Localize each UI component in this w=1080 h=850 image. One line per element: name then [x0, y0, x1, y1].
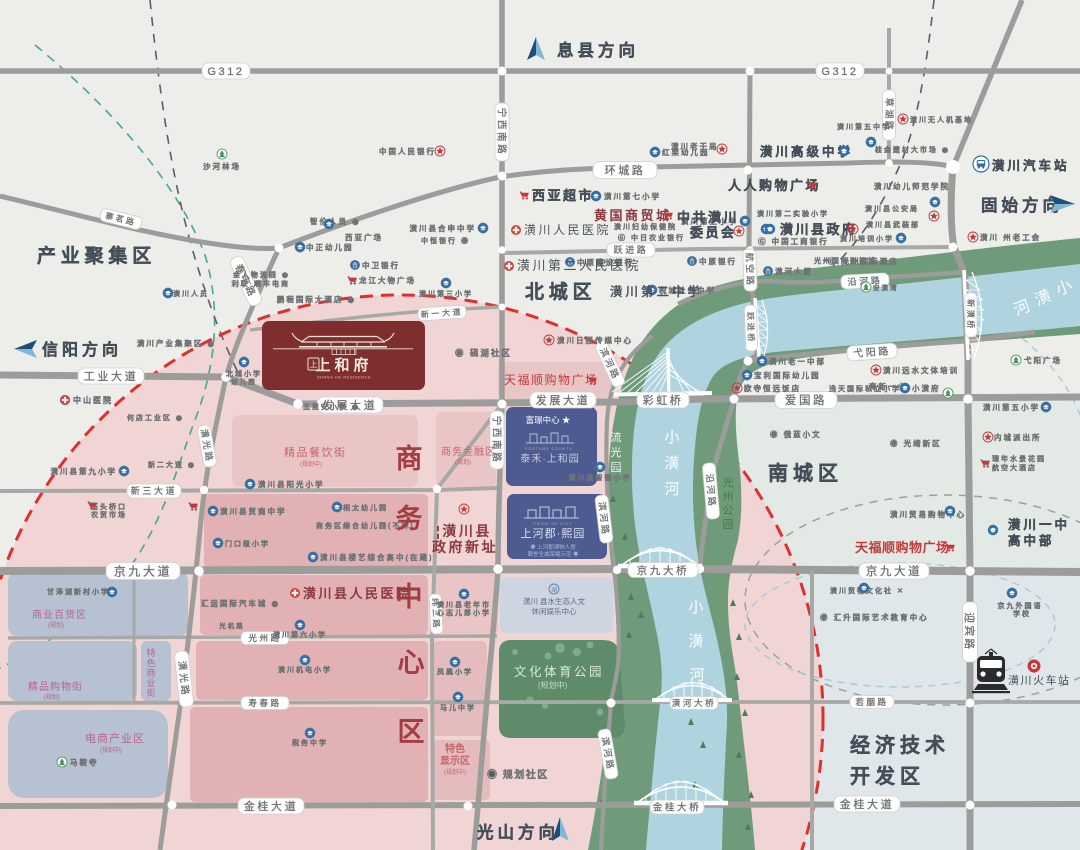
svg-text:龙江大物广场: 龙江大物广场: [359, 275, 416, 285]
svg-text:◉ 规划社区: ◉ 规划社区: [487, 768, 549, 781]
svg-text:欧寺恒远饭店: 欧寺恒远饭店: [744, 383, 801, 393]
svg-text:商业百货区: 商业百货区: [32, 608, 87, 621]
svg-text:河: 河: [689, 667, 704, 684]
svg-text:中山医院: 中山医院: [73, 395, 113, 405]
svg-text:务: 务: [396, 504, 423, 534]
svg-text:沙河林场: 沙河林场: [203, 161, 241, 171]
svg-text:光山方向: 光山方向: [476, 822, 559, 842]
svg-text:汇运国际汽车城 ◍: 汇运国际汽车城 ◍: [201, 598, 280, 608]
svg-text:(规划中): (规划中): [444, 768, 466, 776]
svg-text:G312: G312: [821, 66, 858, 78]
svg-text:宝利国际幼儿园: 宝利国际幼儿园: [754, 370, 821, 380]
svg-text:电商产业区: 电商产业区: [85, 731, 145, 745]
svg-text:潢川 县水生态人文: 潢川 县水生态人文: [523, 596, 586, 606]
svg-text:跃进桥: 跃进桥: [746, 312, 757, 344]
svg-text:息县方向: 息县方向: [557, 40, 639, 60]
svg-text:产业聚集区: 产业聚集区: [37, 244, 156, 267]
svg-text:潢川火车站: 潢川火车站: [1008, 673, 1071, 687]
svg-text:智伦人员 ◍: 智伦人员 ◍: [310, 216, 361, 226]
svg-text:潢川县阳光小学: 潢川县阳光小学: [258, 479, 325, 489]
svg-text:京九外国语: 京九外国语: [998, 601, 1043, 610]
svg-text:潢川第二中学: 潢川第二中学: [610, 284, 703, 299]
svg-text:特: 特: [146, 647, 155, 658]
svg-text:精品购物街: 精品购物街: [28, 680, 83, 693]
svg-text:潢川一中: 潢川一中: [1008, 517, 1070, 532]
svg-text:弋阳广场: 弋阳广场: [1024, 355, 1062, 365]
svg-text:南城区: 南城区: [768, 461, 843, 485]
svg-text:潢川第三小学: 潢川第三小学: [419, 289, 473, 298]
svg-text:幼儿园: 幼儿园: [231, 377, 257, 386]
svg-text:心: 心: [398, 648, 425, 678]
svg-text:州: 州: [723, 491, 734, 503]
svg-text:FORTUNE COUNTY: FORTUNE COUNTY: [525, 447, 572, 451]
svg-text:发展大道: 发展大道: [536, 393, 590, 407]
svg-text:◉ 汇升国际艺术教育中心: ◉ 汇升国际艺术教育中心: [820, 612, 929, 622]
svg-text:G312: G312: [207, 66, 244, 78]
svg-text:甘泽湖新村小学: 甘泽湖新村小学: [47, 587, 110, 596]
svg-text:理年水景花园: 理年水景花园: [992, 454, 1046, 463]
svg-text:迎宾路: 迎宾路: [963, 612, 976, 651]
svg-text:光: 光: [611, 445, 622, 459]
svg-text:精品餐饮街: 精品餐饮街: [284, 445, 347, 459]
svg-text:潢川产业集聚区 ◍: 潢川产业集聚区 ◍: [137, 338, 216, 348]
svg-text:商务金融区: 商务金融区: [441, 445, 496, 458]
svg-text:环城路: 环城路: [605, 164, 646, 177]
svg-text:寿春路: 寿春路: [248, 698, 281, 708]
svg-text:流: 流: [611, 430, 622, 444]
svg-text:Ⓖ 中国工商银行: Ⓖ 中国工商银行: [758, 236, 829, 246]
svg-text:航空路: 航空路: [744, 252, 756, 287]
svg-text:利联·顺丰电商: 利联·顺丰电商: [232, 279, 290, 288]
svg-text:马儿中学: 马儿中学: [440, 703, 476, 712]
svg-text:京九大桥: 京九大桥: [637, 564, 689, 577]
svg-text:潢川县人民医院: 潢川县人民医院: [303, 586, 412, 601]
svg-text:新三大道: 新三大道: [131, 485, 177, 496]
svg-text:金桂大桥: 金桂大桥: [653, 801, 701, 813]
svg-text:何店工业区 ◍: 何店工业区 ◍: [127, 413, 184, 422]
svg-text:中共潢川: 中共潢川: [677, 210, 739, 225]
svg-text:桂金建材大市场 ◍: 桂金建材大市场 ◍: [874, 145, 950, 154]
svg-text:税务中学: 税务中学: [292, 738, 328, 747]
svg-text:商: 商: [146, 667, 155, 678]
svg-text:西亚超市: 西亚超市: [532, 188, 594, 203]
svg-text:潢川县武装部: 潢川县武装部: [866, 220, 920, 229]
svg-text:潢川汽车站: 潢川汽车站: [992, 158, 1070, 173]
svg-text:上和府: 上和府: [315, 356, 372, 374]
svg-text:富璟中心 ★: 富璟中心 ★: [526, 415, 571, 425]
svg-text:◉ 俄蓝小文: ◉ 俄蓝小文: [770, 429, 822, 439]
svg-text:黄国商贸城: 黄国商贸城: [594, 208, 672, 223]
svg-text:(规划中): (规划中): [300, 460, 322, 468]
svg-text:载誉全城荣耀示范 ◉: 载誉全城荣耀示范 ◉: [527, 550, 579, 558]
svg-text:休闲娱乐中心: 休闲娱乐中心: [532, 606, 577, 616]
svg-text:金人物流园 ◍: 金人物流园 ◍: [232, 270, 290, 279]
svg-text:小潢府: 小潢府: [912, 383, 941, 393]
svg-text:泰禾·上和园: 泰禾·上和园: [520, 452, 579, 465]
svg-text:宁西南路: 宁西南路: [496, 108, 508, 156]
svg-text:高中部: 高中部: [1008, 533, 1055, 548]
svg-text:中恒银行 ◉: 中恒银行 ◉: [421, 236, 470, 245]
svg-text:京九大道: 京九大道: [114, 564, 172, 578]
svg-text:◉ 砚湖社区: ◉ 砚湖社区: [455, 348, 512, 358]
svg-text:经济技术: 经济技术: [850, 733, 950, 757]
svg-text:农贸市场: 农贸市场: [90, 510, 127, 519]
svg-text:学校: 学校: [1013, 609, 1031, 618]
svg-text:潢川县智德小学: 潢川县智德小学: [569, 473, 632, 482]
svg-text:街: 街: [146, 687, 155, 698]
svg-text:区: 区: [398, 717, 425, 747]
svg-text:京九大道: 京九大道: [866, 564, 922, 578]
svg-text:潢川人员: 潢川人员: [173, 289, 209, 298]
svg-text:中国人民银行: 中国人民银行: [379, 146, 436, 156]
svg-text:潢川第二人民医院: 潢川第二人民医院: [517, 258, 641, 273]
svg-text:潢川远水文体培训: 潢川远水文体培训: [883, 365, 959, 375]
svg-text:潢川第二实验小学: 潢川第二实验小学: [757, 209, 829, 218]
svg-text:(规划): (规划): [48, 621, 64, 629]
svg-text:河: 河: [664, 481, 679, 498]
svg-text:商: 商: [396, 444, 423, 474]
svg-text:(规划中): (规划中): [100, 746, 122, 754]
svg-text:相太幼儿园: 相太幼儿园: [343, 503, 388, 512]
svg-text:潢河大厦: 潢河大厦: [775, 266, 813, 276]
svg-text:(规划中): (规划中): [538, 680, 568, 690]
svg-text:天福顺购物广场: 天福顺购物广场: [855, 540, 950, 555]
svg-text:潢河大桥: 潢河大桥: [672, 698, 716, 708]
svg-text:特色: 特色: [445, 742, 465, 755]
svg-text:安潢湾: 安潢湾: [873, 283, 899, 292]
svg-text:园: 园: [611, 461, 622, 474]
svg-text:潢川人民医院: 潢川人民医院: [524, 223, 611, 237]
svg-text:若胭路: 若胭路: [855, 697, 888, 707]
svg-text:鹏程国际大酒店 ◍: 鹏程国际大酒店 ◍: [277, 294, 356, 304]
svg-text:新二大道 ◍: 新二大道 ◍: [148, 460, 196, 469]
svg-text:跃进路: 跃进路: [614, 244, 649, 255]
svg-text:园: 园: [723, 518, 734, 531]
svg-text:爱国路: 爱国路: [785, 393, 827, 407]
svg-text:光机路: 光机路: [218, 621, 245, 630]
svg-text:心志儿郎小学: 心志儿郎小学: [437, 608, 491, 617]
svg-text:潢川第七小学: 潢川第七小学: [604, 191, 661, 201]
svg-text:新潢桥: 新潢桥: [966, 299, 976, 331]
svg-text:潢川第五小学: 潢川第五小学: [983, 402, 1040, 412]
svg-text:潢川县楼艺综合高中(在建): 潢川县楼艺综合高中(在建): [320, 552, 434, 562]
svg-text:潢川县合申中学: 潢川县合申中学: [410, 223, 477, 233]
svg-text:门口级小学: 门口级小学: [225, 539, 270, 548]
svg-text:航空大酒店: 航空大酒店: [992, 463, 1037, 472]
svg-text:潢川县第九小学: 潢川县第九小学: [51, 466, 118, 476]
svg-text:潢川老干局: 潢川老干局: [671, 141, 719, 151]
svg-text:湖: 湖: [551, 586, 557, 594]
svg-text:小: 小: [688, 599, 703, 616]
svg-text:中原银行: 中原银行: [699, 256, 737, 266]
svg-text:北城小学: 北城小学: [226, 369, 262, 378]
svg-text:潢川日报传媒中心: 潢川日报传媒中心: [557, 335, 633, 345]
svg-text:潢川机电小学: 潢川机电小学: [278, 665, 332, 674]
svg-text:五里安小学 ◍: 五里安小学 ◍: [303, 402, 360, 411]
svg-text:(规划): (规划): [455, 458, 471, 466]
svg-text:潢: 潢: [688, 633, 703, 650]
svg-text:中卫银行: 中卫银行: [362, 260, 400, 270]
svg-text:文化体育公园: 文化体育公园: [514, 664, 604, 679]
svg-text:小: 小: [664, 429, 679, 446]
svg-text:潢川第五中学: 潢川第五中学: [837, 122, 891, 131]
svg-text:彩虹桥: 彩虹桥: [643, 394, 684, 407]
svg-text:金桂大道: 金桂大道: [840, 797, 894, 811]
svg-text:潢川 州老工会: 潢川 州老工会: [980, 232, 1041, 242]
svg-text:潢川无人机基地: 潢川无人机基地: [910, 115, 973, 124]
svg-text:潢川幼儿师范学院: 潢川幼儿师范学院: [874, 181, 950, 191]
svg-text:光: 光: [723, 475, 734, 489]
svg-text:光州国际影视城 ◍: 光州国际影视城 ◍: [813, 256, 889, 265]
svg-text:西亚广场: 西亚广场: [345, 232, 383, 242]
svg-text:◉ 光绪新区: ◉ 光绪新区: [890, 438, 942, 448]
svg-text:马鞍寺: 马鞍寺: [70, 757, 99, 767]
svg-text:潢川县政府: 潢川县政府: [780, 222, 858, 237]
svg-text:PRIDE OF CITY: PRIDE OF CITY: [533, 522, 572, 526]
svg-text:潢川妇幼保健院: 潢川妇幼保健院: [614, 222, 677, 231]
svg-text:SHANG HE RESIDENCE: SHANG HE RESIDENCE: [317, 375, 371, 380]
svg-text:(规划): (规划): [44, 693, 60, 701]
svg-text:潢川县公安局: 潢川县公安局: [865, 204, 919, 213]
svg-text:内城派出所: 内城派出所: [994, 432, 1042, 442]
svg-text:委员会: 委员会: [689, 225, 737, 240]
svg-text:政府新址: 政府新址: [432, 539, 498, 555]
svg-text:金桂大道: 金桂大道: [244, 799, 298, 813]
svg-text:潢川县贸商中学: 潢川县贸商中学: [220, 506, 287, 516]
svg-text:中正幼儿园: 中正幼儿园: [306, 242, 354, 252]
svg-text:人人购物广场: 人人购物广场: [728, 178, 821, 193]
svg-text:◉ 上河郡博物人居: ◉ 上河郡博物人居: [530, 543, 576, 551]
svg-text:上河郡·熙园: 上河郡·熙园: [521, 527, 586, 540]
svg-text:开发区: 开发区: [850, 764, 925, 788]
svg-text:潢川县老年市: 潢川县老年市: [437, 600, 491, 609]
svg-text:Ⓖ 中日农业银行: Ⓖ 中日农业银行: [618, 233, 685, 242]
svg-text:色: 色: [146, 657, 155, 668]
svg-text:潢: 潢: [664, 455, 679, 472]
svg-text:潢川老一中部: 潢川老一中部: [769, 356, 826, 366]
svg-text:凤凰小学: 凤凰小学: [437, 667, 473, 676]
svg-text:业: 业: [146, 678, 155, 688]
svg-text:北城区: 北城区: [525, 280, 596, 303]
svg-text:信阳方向: 信阳方向: [42, 340, 122, 359]
svg-text:显示区: 显示区: [440, 755, 470, 767]
svg-text:天福顺购物广场: 天福顺购物广场: [504, 372, 599, 387]
svg-text:¦潢川县: ¦潢川县: [436, 523, 492, 539]
svg-text:公: 公: [723, 505, 734, 517]
svg-text:工业大道: 工业大道: [84, 369, 138, 383]
svg-text:潢川第六小学: 潢川第六小学: [273, 630, 327, 639]
